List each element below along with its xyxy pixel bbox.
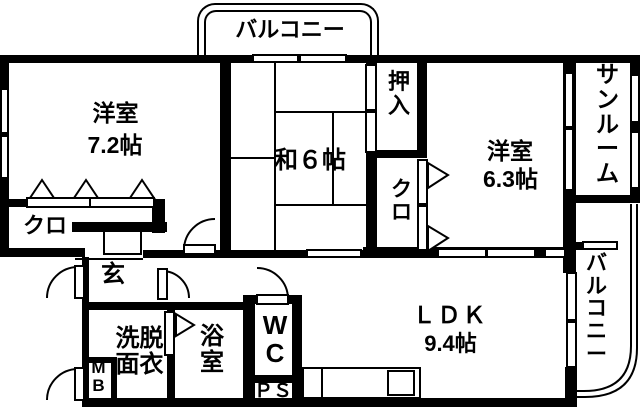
entrance-label: 玄 [98, 261, 128, 289]
folding-door-mark [130, 180, 154, 198]
wall [366, 62, 377, 154]
wall [288, 295, 302, 304]
wc-label: WC [261, 311, 289, 367]
wall [167, 310, 175, 407]
closet-left-label: クロ [17, 213, 73, 238]
tatami-line [274, 204, 367, 206]
mb-label: MB [89, 359, 108, 396]
door-arc-meter-box [47, 369, 78, 400]
sliding-door-room2-ldk [437, 248, 487, 258]
tatami-line [274, 111, 367, 113]
door-leaf-wc [257, 295, 288, 304]
wall [9, 199, 159, 207]
japanese-room-label: 和６帖 [240, 147, 380, 175]
washroom-label: 洗脱面衣 [112, 326, 167, 378]
folding-door-mark [428, 163, 448, 188]
wall [82, 398, 577, 407]
wall [220, 62, 231, 258]
balcony-right-label: バルコニー [584, 253, 609, 366]
sunroom-window [564, 128, 574, 191]
western-room-2-name: 洋室 [475, 138, 545, 164]
kitchen-counter-divider [321, 368, 323, 398]
oshiire-label: 押入 [386, 70, 412, 118]
kitchen-sink [387, 370, 415, 396]
balcony-right-rail [582, 241, 618, 250]
wall [417, 62, 427, 154]
folding-door-mark [176, 314, 194, 336]
bathroom-label: 浴室 [198, 324, 226, 376]
balcony-top-label: バルコニー [210, 17, 370, 42]
ldk-name: ＬＤＫ [405, 302, 495, 328]
sliding-door-ldk-balcony [566, 272, 577, 321]
wall [143, 250, 223, 258]
ldk-size: 9.4帖 [408, 331, 493, 356]
wall [243, 295, 258, 304]
door-arc-wc [257, 268, 288, 299]
door-arc-entrance [47, 267, 78, 298]
sliding-door-balcony-top [299, 54, 347, 63]
sunroom-window [630, 131, 640, 189]
closet-track [418, 206, 427, 250]
wall [563, 195, 640, 203]
window-west [0, 88, 9, 134]
sliding-door-japanese-hall [306, 249, 362, 258]
door-leaf-hall [158, 269, 167, 299]
closet-track [418, 160, 427, 204]
ps-label: ＰＳ [251, 381, 295, 403]
wall [82, 302, 255, 310]
folding-door-mark [74, 180, 98, 198]
door-arc-hall-nook [184, 219, 215, 250]
folding-door-mark [30, 180, 54, 198]
sunroom-label: サンルーム [594, 62, 621, 186]
shoe-cabinet [103, 230, 142, 255]
floor-plan: バルコニー 洋室 7.2帖 和６帖 押入 クロ 洋室 6.3帖 サンルーム バル… [0, 0, 640, 407]
sliding-door-ldk-balcony [566, 321, 577, 368]
window-west [0, 135, 9, 179]
entrance-step-line [75, 258, 143, 260]
wall [565, 367, 577, 407]
wall [82, 257, 89, 407]
wall [0, 248, 85, 257]
western-room-2-size: 6.3帖 [468, 166, 553, 192]
western-room-1-name: 洋室 [58, 100, 173, 126]
sunroom-window [630, 74, 640, 123]
western-room-1-size: 7.2帖 [55, 132, 175, 158]
sunroom-window [564, 72, 574, 128]
closet-mid-label: クロ [389, 179, 414, 224]
window-ldk-corner [544, 248, 566, 258]
sliding-door-room2-ldk [486, 248, 536, 258]
door-arc-hall [162, 271, 189, 298]
